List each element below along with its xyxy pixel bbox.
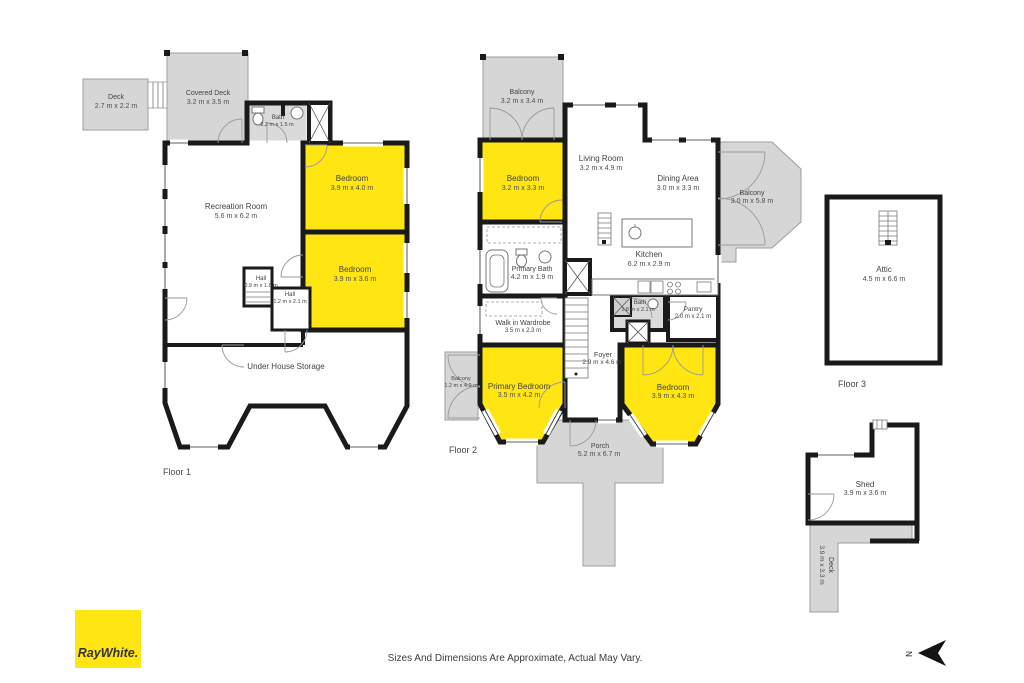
room-dims-balcony-right: 3.0 m x 5.8 m (731, 198, 774, 205)
shed-block: Shed 3.9 m x 3.6 m Deck 3.9 m x 3.3 m (808, 420, 919, 612)
shaft-box (565, 260, 590, 294)
floorplan-canvas: Deck 2.7 m x 2.2 m Covered Deck 3.2 m x … (0, 0, 1024, 683)
floorplan-page: Deck 2.7 m x 2.2 m Covered Deck 3.2 m x … (0, 0, 1024, 683)
room-label-bath-f1: Bath (272, 115, 284, 121)
floor1: Deck 2.7 m x 2.2 m Covered Deck 3.2 m x … (83, 50, 411, 477)
room-label-recreation: Recreation Room (205, 202, 268, 211)
room-label-bedroom1: Bedroom (336, 174, 369, 183)
room-dims-bedroom1: 3.9 m x 4.0 m (331, 185, 374, 192)
deck-steps-icon (148, 82, 167, 108)
room-dims-bedroom-top: 3.2 m x 3.3 m (502, 185, 545, 192)
floor3: Attic 4.5 m x 6.6 m Floor 3 (827, 197, 940, 389)
closet-box (309, 103, 330, 143)
room-label-dining: Dining Area (657, 174, 699, 183)
room-label-hall2: Hall (285, 292, 295, 298)
room-dims-primary-bedroom: 3.5 m x 4.2 m (498, 392, 541, 399)
room-dims-bath-f1: 2.2 m x 1.5 m (260, 122, 294, 128)
room-dims-recreation: 5.6 m x 6.2 m (215, 213, 258, 220)
room-label-bedroom-top: Bedroom (507, 174, 540, 183)
north-label: N (905, 651, 914, 657)
room-dims-shed-deck: 3.9 m x 3.3 m (818, 545, 825, 584)
room-label-balcony-right: Balcony (740, 190, 765, 197)
room-label-balcony-top: Balcony (510, 89, 535, 96)
room-dims-shed: 3.9 m x 3.6 m (844, 490, 887, 497)
room-label-bedroom2: Bedroom (339, 265, 372, 274)
room-label-balcony-left: Balcony (451, 376, 471, 382)
room-label-living: Living Room (579, 154, 624, 163)
floor3-caption: Floor 3 (838, 379, 866, 389)
footer: RayWhite. Sizes And Dimensions Are Appro… (75, 610, 946, 668)
raywhite-logo-text: RayWhite. (78, 646, 138, 660)
room-dims-balcony-top: 3.2 m x 3.4 m (501, 98, 544, 105)
north-arrow-icon: N (905, 640, 946, 666)
room-dims-bedroom2: 3.9 m x 3.6 m (334, 276, 377, 283)
room-dims-porch: 5.2 m x 6.7 m (578, 451, 621, 458)
room-label-bath-f2: Bath (634, 300, 646, 306)
room-dims-wardrobe: 3.5 m x 2.3 m (505, 328, 541, 334)
room-label-porch: Porch (591, 443, 609, 450)
room-dims-balcony-left: 1.2 m x 4.0 m (444, 383, 478, 389)
room-label-storage: Under House Storage (247, 362, 325, 371)
room-label-hall1: Hall (256, 276, 266, 282)
deck-post (164, 50, 170, 56)
room-label-covered-deck: Covered Deck (186, 90, 231, 97)
attic-ladder-icon (879, 211, 897, 245)
room-label-attic: Attic (876, 265, 892, 274)
foyer-stairs-icon (565, 298, 588, 378)
cupboard-box (627, 321, 649, 343)
covered-deck-area (167, 53, 248, 143)
kitchen-counter-icon (592, 279, 718, 295)
room-dims-attic: 4.5 m x 6.6 m (863, 276, 906, 283)
room-dims-bedroom-bottom: 3.9 m x 4.3 m (652, 393, 695, 400)
room-dims-kitchen: 6.2 m x 2.9 m (628, 261, 671, 268)
room-label-kitchen: Kitchen (636, 250, 663, 259)
floor1-caption: Floor 1 (163, 467, 191, 477)
room-label-deck: Deck (108, 94, 124, 101)
room-label-primary-bedroom: Primary Bedroom (488, 382, 551, 391)
attic-stairs-icon (598, 213, 611, 245)
bathtub-icon (486, 250, 508, 292)
room-dims-dining: 3.0 m x 3.3 m (657, 185, 700, 192)
room-label-bedroom-bottom: Bedroom (657, 383, 690, 392)
deck-post (242, 50, 248, 56)
room-label-wardrobe: Walk in Wardrobe (495, 320, 550, 327)
kitchen-island-icon (622, 219, 692, 247)
porch-area (537, 420, 663, 566)
room-label-pantry: Pantry (684, 306, 704, 313)
shed-room (808, 425, 917, 523)
balcony-post (558, 54, 564, 60)
room-label-primary-bath: Primary Bath (512, 266, 553, 273)
floor2: Balcony 3.2 m x 3.4 m Bedroom 3.2 m x 3.… (444, 54, 801, 566)
toilet-icon-f2 (516, 249, 527, 267)
balcony-post (480, 54, 486, 60)
room-dims-hall1: 0.9 m x 1.8 m (244, 283, 278, 289)
room-label-shed: Shed (856, 480, 875, 489)
room-dims-hall2: 1.2 m x 2.1 m (273, 299, 307, 305)
room-dims-deck: 2.7 m x 2.2 m (95, 103, 138, 110)
room-dims-primary-bath: 4.2 m x 1.9 m (511, 274, 554, 281)
room-dims-covered-deck: 3.2 m x 3.5 m (187, 99, 230, 106)
room-label-foyer: Foyer (594, 352, 613, 359)
sink-icon-f2 (539, 251, 551, 263)
disclaimer-text: Sizes And Dimensions Are Approximate, Ac… (388, 653, 643, 664)
raywhite-logo: RayWhite. (75, 610, 141, 668)
sink-icon (291, 107, 303, 119)
room-label-shed-deck: Deck (827, 557, 834, 573)
room-dims-foyer: 2.9 m x 4.6 m (582, 359, 621, 366)
room-dims-pantry: 2.0 m x 2.1 m (675, 314, 711, 320)
room-dims-living: 3.2 m x 4.9 m (580, 165, 623, 172)
floor2-caption: Floor 2 (449, 445, 477, 455)
room-dims-bath-f2: 1.8 m x 2.1 m (621, 307, 655, 313)
